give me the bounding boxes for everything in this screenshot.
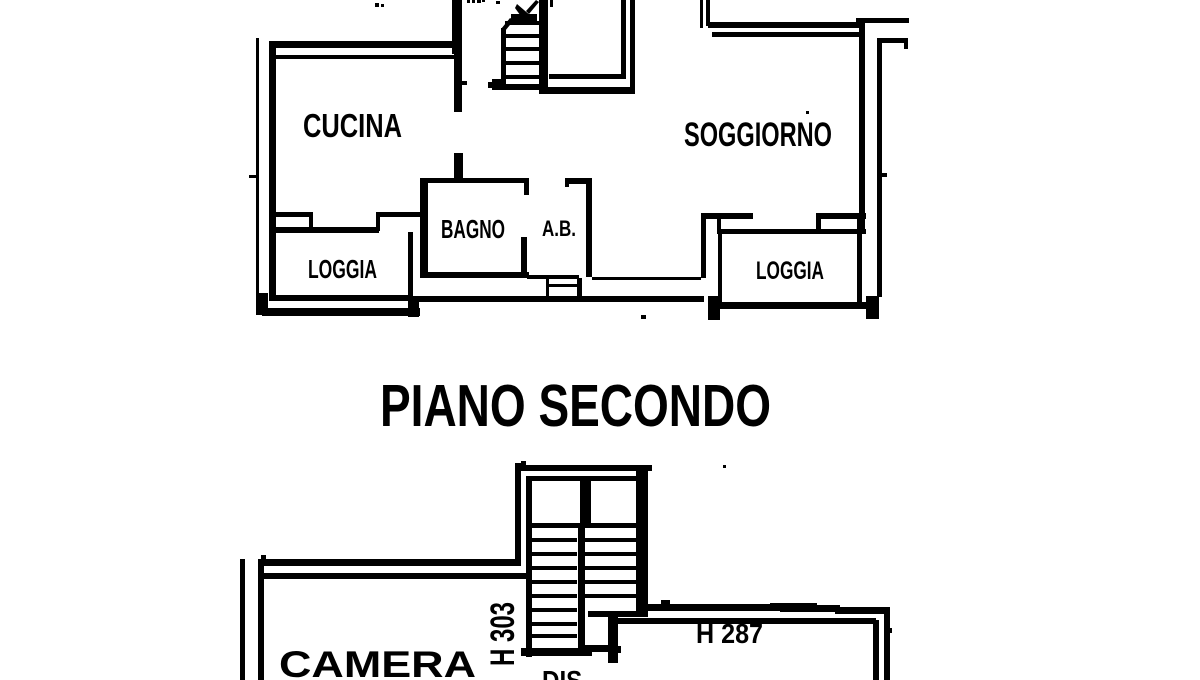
svg-text:A.B.: A.B. [542, 216, 576, 241]
svg-text:SOGGIORNO: SOGGIORNO [684, 116, 832, 154]
svg-text:H 287: H 287 [696, 618, 763, 649]
svg-text:LOGGIA: LOGGIA [308, 254, 377, 284]
svg-text:BAGNO: BAGNO [441, 214, 505, 244]
svg-text:CAMERA: CAMERA [279, 644, 476, 680]
svg-text:LOGGIA: LOGGIA [756, 257, 824, 285]
svg-text:PIANO SECONDO: PIANO SECONDO [380, 373, 771, 439]
svg-text:CUCINA: CUCINA [303, 107, 402, 144]
svg-text:DIS.: DIS. [542, 665, 589, 680]
svg-text:H 303: H 303 [484, 602, 522, 666]
